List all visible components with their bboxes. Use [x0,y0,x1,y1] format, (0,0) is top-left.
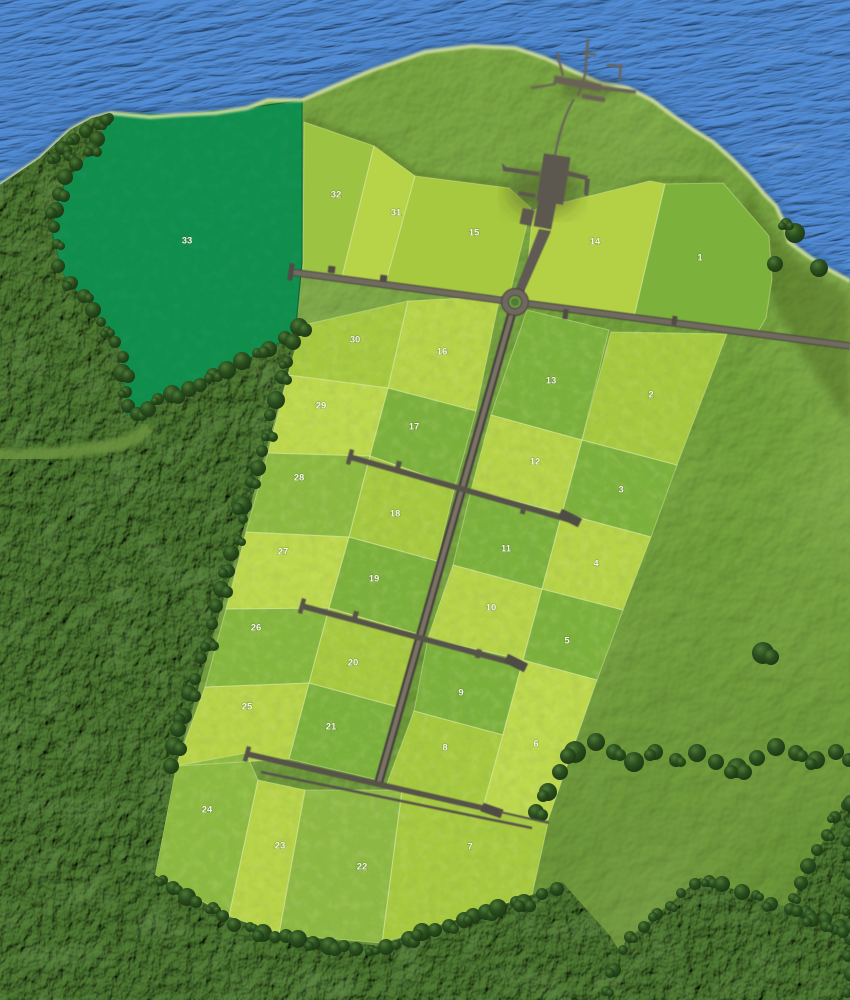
svg-text:6: 6 [533,739,538,750]
svg-text:12: 12 [530,457,541,468]
svg-text:24: 24 [202,805,213,816]
svg-text:20: 20 [348,658,359,669]
svg-text:25: 25 [242,702,253,713]
svg-text:23: 23 [275,841,286,852]
svg-text:1: 1 [697,253,703,264]
svg-text:31: 31 [391,208,402,219]
svg-text:19: 19 [369,574,380,585]
svg-text:17: 17 [409,422,420,433]
svg-text:21: 21 [326,722,337,733]
svg-text:15: 15 [469,228,480,239]
svg-text:26: 26 [251,623,262,634]
svg-text:22: 22 [357,862,368,873]
svg-text:33: 33 [182,236,193,247]
svg-text:3: 3 [618,485,623,496]
svg-text:14: 14 [590,237,601,248]
svg-text:13: 13 [546,376,557,387]
svg-text:7: 7 [467,842,472,853]
svg-text:2: 2 [648,390,653,401]
svg-text:30: 30 [350,335,361,346]
svg-text:29: 29 [316,401,327,412]
svg-text:27: 27 [278,547,289,558]
svg-text:16: 16 [437,347,448,358]
svg-text:10: 10 [486,603,497,614]
svg-text:8: 8 [442,743,447,754]
svg-text:9: 9 [458,688,463,699]
svg-text:18: 18 [390,509,401,520]
svg-text:28: 28 [294,473,305,484]
svg-text:5: 5 [564,636,570,647]
svg-text:32: 32 [331,190,342,201]
svg-text:11: 11 [501,544,512,555]
svg-text:4: 4 [593,559,599,570]
